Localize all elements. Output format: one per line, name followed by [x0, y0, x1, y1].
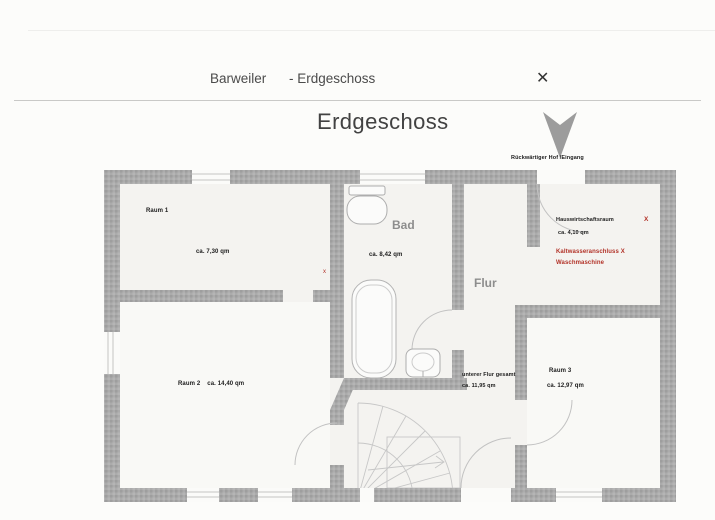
bathtub-icon — [352, 280, 396, 378]
room-label-flur: Flur — [474, 276, 497, 290]
room-area-unterer-flur: ca. 11,95 qm — [462, 383, 496, 390]
room-label-raum3: Raum 3 — [549, 368, 571, 375]
x-marker-raum1: x — [323, 269, 326, 276]
raum3-floor — [527, 318, 660, 488]
floor-plan-drawing — [0, 0, 715, 520]
raum2-floor — [120, 302, 330, 488]
room-area-raum3: ca. 12,97 qm — [547, 383, 584, 390]
room-label-hauswirtschaftsraum: Hauswirtschaftsraum — [556, 217, 614, 224]
room-label-raum1: Raum 1 — [146, 208, 168, 215]
x-marker-hauswirtschaftsraum: X — [644, 216, 648, 223]
room-label-bad: Bad — [392, 218, 415, 232]
toilet-icon — [347, 186, 387, 224]
room-area-raum2: ca. 14,40 qm — [207, 381, 244, 388]
annotation-waschmaschine: Waschmaschine — [556, 260, 604, 267]
room-label-raum2: Raum 2 ca. 14,40 qm — [178, 381, 244, 388]
room-area-hauswirtschaftsraum: ca. 4,10 qm — [558, 230, 589, 237]
room-label-unterer-flur: unterer Flur gesamt — [462, 372, 516, 379]
room-name-raum2: Raum 2 — [178, 381, 200, 388]
sink-icon — [406, 349, 440, 377]
room-area-bad: ca. 8,42 qm — [369, 252, 402, 259]
annotation-kaltwasseranschluss: Kaltwasseranschluss X — [556, 249, 625, 256]
room-area-raum1: ca. 7,30 qm — [196, 249, 229, 256]
